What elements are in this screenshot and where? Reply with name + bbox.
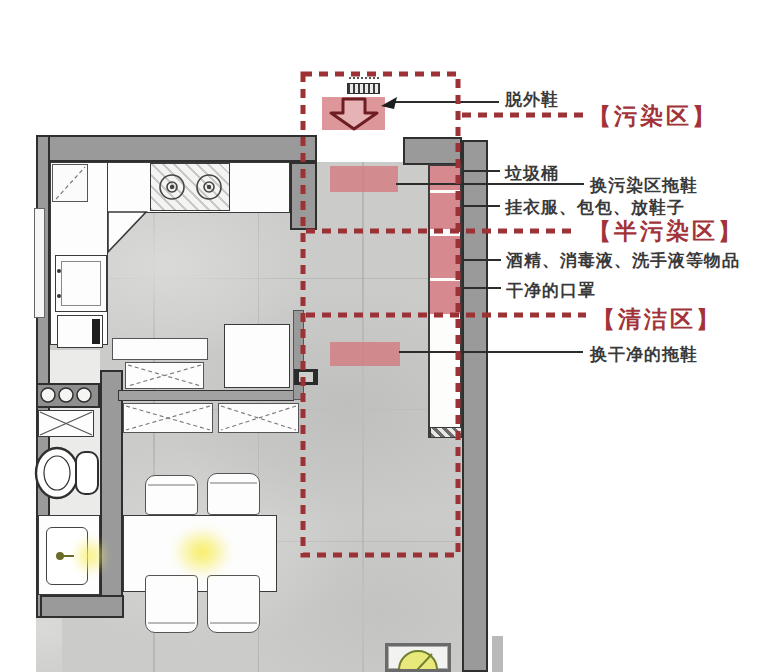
- dining-chair: [207, 473, 260, 515]
- cabinet-seg-disinfectant: [430, 236, 460, 278]
- sink-light-glow: [72, 536, 108, 576]
- sofa-cushion: [218, 403, 299, 433]
- cabinet-seg-clean-shoes: [430, 318, 460, 426]
- kitchen-corner-cabinet: [52, 164, 88, 202]
- wall-right: [462, 140, 488, 672]
- zone-label-semi-contaminated: 【半污染区】: [588, 216, 744, 247]
- label-trash-bin: 垃圾桶: [505, 162, 559, 185]
- shoe-cabinet: [428, 164, 462, 438]
- wall-kitchen-partition: [290, 162, 317, 230]
- label-change-contaminated-slippers: 换污染区拖鞋: [590, 174, 698, 197]
- decor-plate-icon: [388, 646, 448, 672]
- dining-chair: [145, 475, 198, 515]
- washing-machine: [38, 410, 94, 437]
- label-take-off-shoes: 脱外鞋: [505, 88, 559, 111]
- gas-stove: [150, 163, 230, 211]
- marble-floor-patch: [36, 618, 62, 672]
- sofa-back-ledge: [118, 390, 294, 401]
- door-jamb-gap: [299, 372, 313, 382]
- label-clean-masks: 干净的口罩: [506, 279, 596, 302]
- sofa-cushion: [125, 362, 204, 389]
- floor-plan-diagram: 脱外鞋 【污染区】 垃圾桶 换污染区拖鞋 挂衣服、包包、放鞋子 【半污染区】 酒…: [0, 0, 780, 672]
- window-left-wall: [34, 208, 45, 318]
- dining-chair: [145, 575, 198, 633]
- dining-chair: [207, 575, 260, 633]
- entry-arrow-mat: [322, 97, 385, 130]
- label-change-clean-slippers: 换干净的拖鞋: [590, 343, 698, 366]
- refrigerator-inner: [61, 261, 101, 306]
- bathroom-hob-unit: [36, 383, 100, 408]
- wall-bathroom-bottom: [40, 595, 124, 618]
- sofa-cushion: [123, 403, 213, 433]
- entry-doormat: [347, 83, 380, 94]
- wall-top-left: [36, 135, 317, 162]
- side-table: [224, 324, 290, 388]
- threshold-dots: [349, 77, 379, 79]
- label-disinfectants: 酒精、消毒液、洗手液等物品: [506, 249, 740, 272]
- wall-outer-edge: [492, 636, 503, 672]
- zone-label-contaminated: 【污染区】: [588, 101, 718, 132]
- wall-top-right: [403, 137, 462, 165]
- oven-handle: [92, 319, 100, 344]
- pendant-light-glow: [173, 527, 231, 577]
- cabinet-seg-masks: [430, 281, 460, 314]
- cabinet-base-hatch: [430, 427, 462, 438]
- partition-post: [293, 310, 304, 400]
- zone-label-clean: 【清洁区】: [592, 304, 722, 335]
- cabinet-seg-trash: [430, 166, 460, 190]
- cabinet-seg-coats: [430, 193, 460, 229]
- wall-bathroom-partition: [100, 370, 123, 618]
- decor-frame: [385, 643, 451, 672]
- sofa-console: [112, 338, 208, 360]
- slipper-mat-contaminated: [330, 166, 398, 192]
- slipper-mat-clean: [330, 342, 400, 366]
